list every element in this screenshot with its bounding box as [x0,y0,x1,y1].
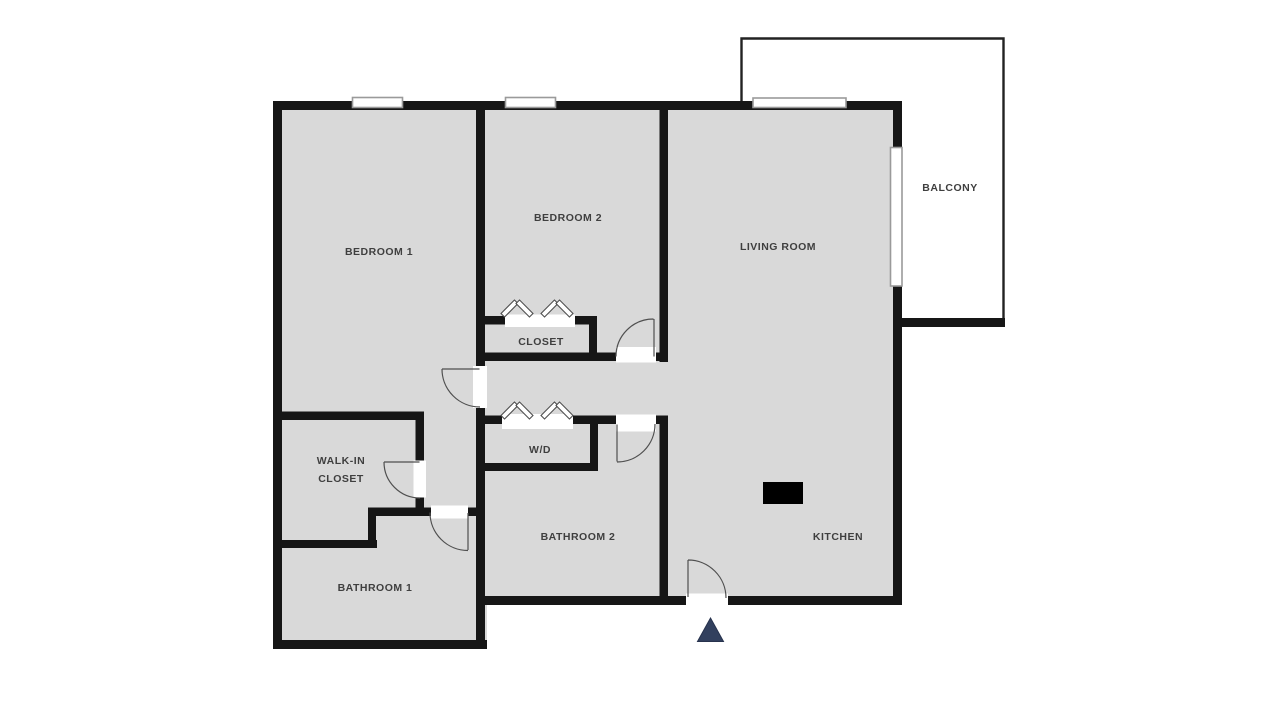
window-living [753,98,846,108]
room-label-bathroom-1: BATHROOM 1 [338,582,413,594]
window-balcony-door [891,148,903,287]
floor-plan: BEDROOM 1 BEDROOM 2 LIVING ROOM BALCONY … [0,0,1280,720]
kitchen-fixture [763,482,803,504]
room-label-washer-dryer: W/D [529,444,551,456]
wall-wd-bottom [480,463,598,471]
room-label-walk-in-closet: WALK-IN CLOSET [306,453,376,489]
wall-left [273,101,282,649]
entrance-marker-icon [698,618,724,642]
wall-bathroom1-bottom [273,640,487,649]
room-label-closet: CLOSET [518,336,564,348]
room-label-bathroom-2: BATHROOM 2 [541,531,616,543]
room-label-bedroom-2: BEDROOM 2 [534,212,602,224]
wall-bedroom2-living [660,101,669,362]
wall-wd-right [590,416,598,472]
floor-plan-drawing [0,0,1280,720]
window-bedroom1 [353,98,403,108]
wall-closet-right [589,316,597,361]
room-label-bedroom-1: BEDROOM 1 [345,246,413,258]
room-label-balcony: BALCONY [922,182,977,194]
room-label-kitchen: KITCHEN [813,531,863,543]
wall-bathroom2-kitchen [660,416,669,605]
floor-area [273,101,902,649]
wall-step [368,508,376,549]
wall-walkin-bottom [273,540,377,548]
window-bedroom2 [506,98,556,108]
room-label-living-room: LIVING ROOM [740,241,816,253]
wall-walkin-top [273,412,424,421]
